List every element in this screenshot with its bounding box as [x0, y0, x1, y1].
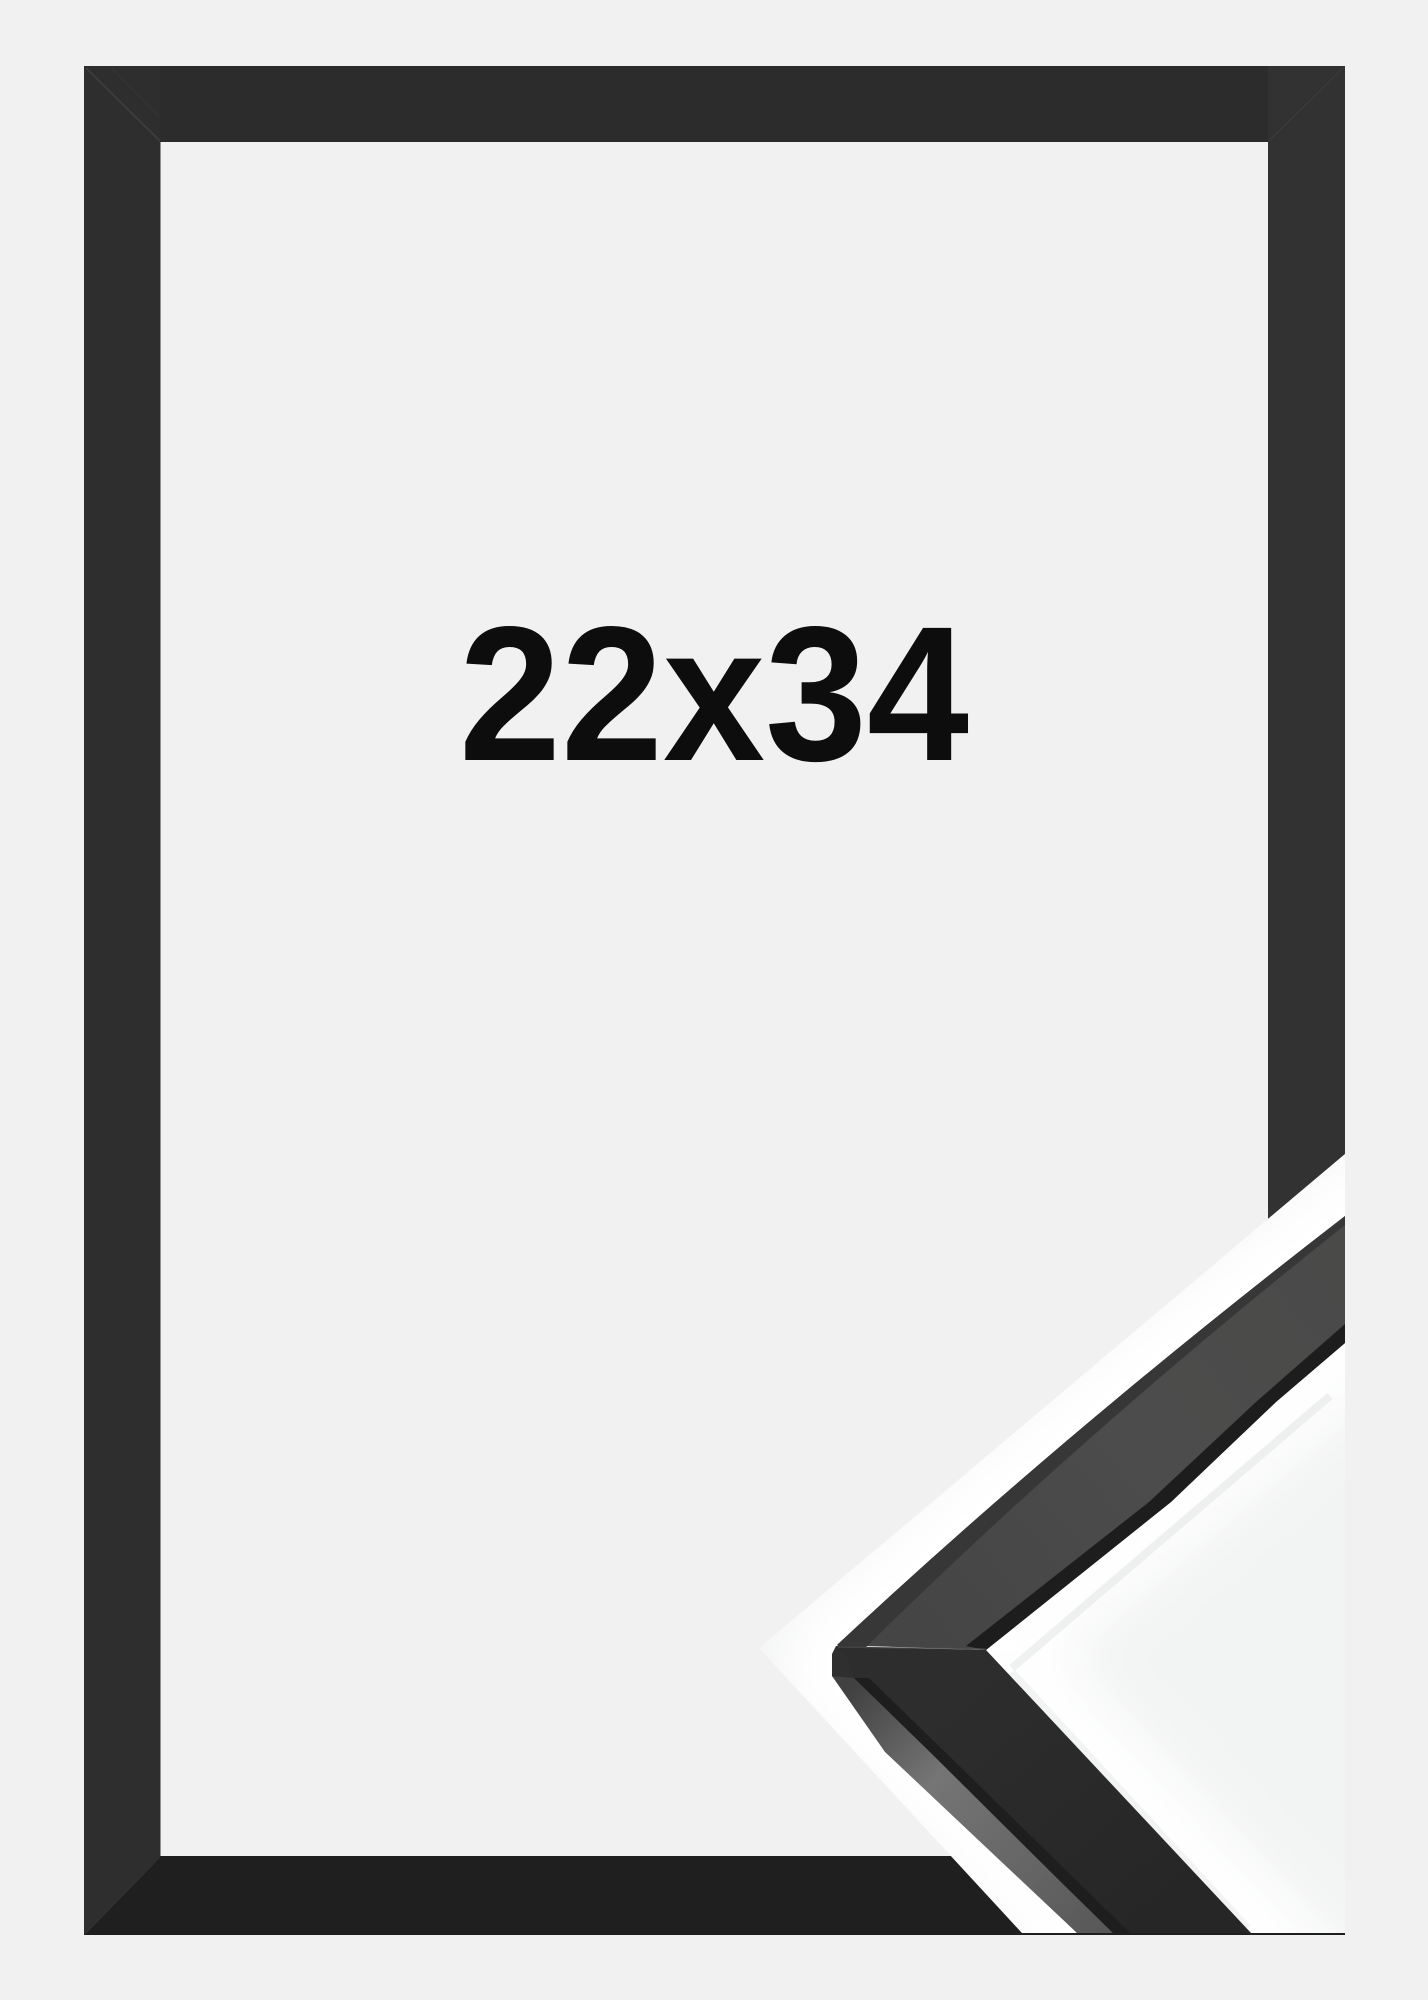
- svg-text:22x34: 22x34: [459, 586, 969, 801]
